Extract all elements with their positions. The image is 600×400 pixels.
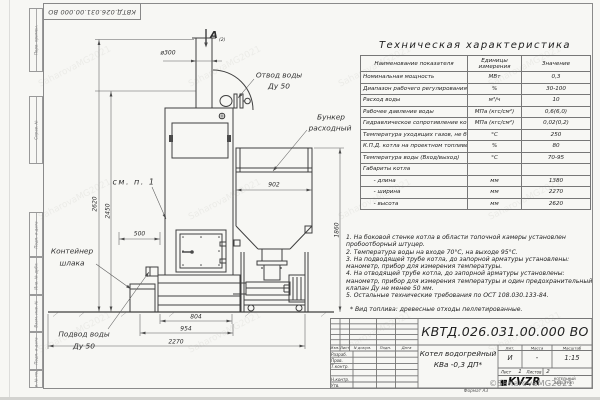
role-prov: Пров. bbox=[331, 358, 353, 363]
frame-field-inv-podl: Инв. № подл. bbox=[29, 370, 43, 388]
spec-cell-unit bbox=[468, 164, 522, 176]
spec-cell-value: 30-100 bbox=[522, 83, 591, 95]
spec-row: - высота мм 2620 bbox=[361, 198, 591, 210]
spec-header-name: Наименование показателя bbox=[361, 56, 468, 72]
view-a-marker: А bbox=[210, 30, 218, 41]
spec-table-region: Техническая характеристика Наименование … bbox=[360, 40, 590, 210]
scale-value: 1:15 bbox=[564, 354, 579, 362]
dim-base-width: 804 bbox=[190, 314, 201, 321]
dim-total-height: 2620 bbox=[92, 196, 99, 211]
frame-field-perv-primen: Перв. примен. bbox=[29, 8, 43, 72]
drawing-sheet: КВТД.026.031.00.000 ВО Перв. примен. Спр… bbox=[0, 0, 600, 400]
spec-cell-value: 2620 bbox=[522, 198, 591, 210]
mass-header: Масса bbox=[531, 346, 543, 351]
spec-cell-unit: % bbox=[468, 83, 522, 95]
lit-header: Лит. bbox=[506, 346, 515, 351]
sheet-value: 1 bbox=[518, 369, 522, 375]
scale-header: Масштаб bbox=[563, 346, 582, 351]
spec-row: Температура уходящих газов, не более °С … bbox=[361, 129, 591, 141]
role-nkontr: Н.контр. bbox=[331, 377, 353, 382]
water-outlet-size: Ду 50 bbox=[268, 82, 290, 91]
hopper-label-2: расходный bbox=[309, 124, 352, 133]
spec-cell-unit: °С bbox=[468, 129, 522, 141]
dim-overall-width: 2270 bbox=[168, 339, 183, 346]
hopper-label: Бункер bbox=[317, 113, 345, 122]
note-line: 2. Температура воды на входе 70°С, на вы… bbox=[346, 249, 592, 256]
role-tkontr: Т.контр. bbox=[331, 364, 353, 369]
mass-value: - bbox=[536, 354, 538, 362]
title-block-designation: КВТД.026.031.00.000 ВО bbox=[418, 319, 592, 344]
frame-field-label: Подп. и дата bbox=[34, 337, 39, 364]
spec-cell-unit: м³/ч bbox=[468, 95, 522, 107]
dim-hopper-width: 902 bbox=[268, 182, 279, 189]
view-a-sheet-ref: (2) bbox=[219, 38, 225, 43]
fuel-type-note: * Вид топлива: древесные отходы пеллетир… bbox=[350, 306, 592, 313]
spec-row: Габариты котла bbox=[361, 164, 591, 176]
frame-field-label: Перв. примен. bbox=[34, 25, 39, 55]
role-razrab: Разраб. bbox=[331, 352, 353, 357]
spec-cell-value: 0,02(0,2) bbox=[522, 118, 591, 130]
spec-cell-name: Габариты котла bbox=[361, 164, 468, 176]
spec-cell-name: К.П.Д. котла на проектном топливе bbox=[361, 141, 468, 153]
water-inlet-size: Ду 50 bbox=[73, 342, 95, 351]
spec-row: - ширина мм 2270 bbox=[361, 187, 591, 199]
spec-cell-name: Температура уходящих газов, не более bbox=[361, 129, 468, 141]
spec-cell-value bbox=[522, 164, 591, 176]
title-block-header-col: N докум. bbox=[349, 345, 376, 351]
note-line: пробоотборный штуцер. bbox=[346, 241, 592, 248]
slag-container-label-2: шлака bbox=[59, 259, 84, 268]
spec-cell-unit: мм bbox=[468, 198, 522, 210]
spec-row: Гидравлическое сопротивление котла МПа (… bbox=[361, 118, 591, 130]
frame-field-inv-dubl: Инв. № дубл. bbox=[29, 257, 43, 295]
spec-row: Диапазон рабочего регулирования % 30-100 bbox=[361, 83, 591, 95]
corner-designation-text: КВТД.026.031.00.000 ВО bbox=[48, 8, 136, 16]
frame-field-label: Справ. № bbox=[34, 120, 39, 139]
spec-cell-value: 2270 bbox=[522, 187, 591, 199]
spec-cell-value: 70-95 bbox=[522, 152, 591, 164]
see-note-label: см. п. 1 bbox=[113, 178, 156, 187]
dim-outlet-height: 2450 bbox=[104, 203, 111, 218]
spec-cell-value: 80 bbox=[522, 141, 591, 153]
corner-designation-stamp: КВТД.026.031.00.000 ВО bbox=[43, 3, 141, 20]
spec-row: К.П.Д. котла на проектном топливе % 80 bbox=[361, 141, 591, 153]
spec-cell-unit: °С bbox=[468, 152, 522, 164]
spec-table: Наименование показателя Единицы измерени… bbox=[360, 55, 591, 210]
spec-cell-value: 0,6(6,0) bbox=[522, 106, 591, 118]
spec-cell-name: Рабочее давление воды bbox=[361, 106, 468, 118]
sheet-label: Лист bbox=[501, 369, 511, 374]
note-line: 4. На отводящей трубе котла, до запорной… bbox=[346, 270, 592, 277]
water-outlet-label: Отвод воды bbox=[256, 71, 302, 80]
spec-cell-name: Диапазон рабочего регулирования bbox=[361, 83, 468, 95]
spec-cell-name: Гидравлическое сопротивление котла bbox=[361, 118, 468, 130]
spec-row: Рабочее давление воды МПа (кгс/см²) 0,6(… bbox=[361, 106, 591, 118]
spec-header-value: Значение bbox=[522, 56, 591, 72]
title-block-header-col: Дата bbox=[395, 345, 418, 351]
spec-row: Номинальная мощность МВт 0,3 bbox=[361, 72, 591, 84]
spec-cell-unit: МПа (кгс/см²) bbox=[468, 106, 522, 118]
spec-header-units: Единицы измерения bbox=[468, 56, 522, 72]
spec-row: Температура воды (Вход/выход) °С 70-95 bbox=[361, 152, 591, 164]
spec-cell-unit: % bbox=[468, 141, 522, 153]
frame-field-podp-data-2: Подп. и дата bbox=[29, 332, 43, 370]
spec-cell-value: 0,3 bbox=[522, 72, 591, 84]
spec-cell-unit: мм bbox=[468, 187, 522, 199]
spec-cell-name: - длина bbox=[361, 175, 468, 187]
note-line: 5. Остальные технические требования по О… bbox=[346, 292, 592, 299]
frame-field-sprav-no: Справ. № bbox=[29, 96, 43, 164]
title-block-header-col: Лист bbox=[340, 345, 349, 351]
spec-cell-name: - высота bbox=[361, 198, 468, 210]
dim-hopper-height: 1860 bbox=[334, 222, 341, 237]
water-inlet-label: Подвод воды bbox=[58, 330, 109, 339]
title-block-header-col: Подп. bbox=[376, 345, 395, 351]
technical-notes: 1. На боковой стенке котла в области топ… bbox=[346, 234, 592, 313]
role-utv: Утв. bbox=[331, 383, 353, 388]
product-title-line2: КВа -0,3 ДП* bbox=[418, 360, 498, 369]
spec-cell-name: - ширина bbox=[361, 187, 468, 199]
sheets-value: 2 bbox=[546, 369, 550, 375]
frame-field-label: Подп. и дата bbox=[34, 221, 39, 248]
frame-field-podp-data-1: Подп. и дата bbox=[29, 212, 43, 257]
title-block-header-col: Изм. bbox=[330, 345, 340, 351]
spec-cell-name: Расход воды bbox=[361, 95, 468, 107]
dim-chimney-diameter: ø300 bbox=[160, 50, 175, 57]
spec-cell-value: 1380 bbox=[522, 175, 591, 187]
frame-field-label: Инв. № дубл. bbox=[34, 262, 39, 289]
spec-row: Расход воды м³/ч 10 bbox=[361, 95, 591, 107]
spec-cell-name: Температура воды (Вход/выход) bbox=[361, 152, 468, 164]
spec-cell-unit: МВт bbox=[468, 72, 522, 84]
frame-field-label: Взам. инв. № bbox=[34, 300, 39, 327]
frame-field-label: Инв. № подл. bbox=[34, 370, 39, 388]
spec-cell-value: 250 bbox=[522, 129, 591, 141]
format-note: Формат А3 bbox=[452, 389, 500, 394]
product-title-line1: Котел водогрейный bbox=[418, 349, 498, 358]
title-block-header-columns: Изм.ЛистN докум.Подп.Дата bbox=[330, 345, 418, 351]
dim-boiler-width: 954 bbox=[180, 326, 191, 333]
spec-table-title: Техническая характеристика bbox=[360, 40, 590, 51]
spec-cell-unit: мм bbox=[468, 175, 522, 187]
spec-cell-value: 10 bbox=[522, 95, 591, 107]
arrowheads bbox=[49, 40, 342, 347]
spec-cell-unit: МПа (кгс/см²) bbox=[468, 118, 522, 130]
spec-cell-name: Номинальная мощность bbox=[361, 72, 468, 84]
note-line: манометр, прибор для измерения температу… bbox=[346, 278, 592, 285]
watermark-signature: ©SaharovaMG2021 bbox=[489, 378, 573, 388]
lit-value: И bbox=[507, 354, 512, 362]
spec-row: - длина мм 1380 bbox=[361, 175, 591, 187]
slag-container-label: Контейнер bbox=[51, 247, 93, 256]
spec-header-row: Наименование показателя Единицы измерени… bbox=[361, 56, 591, 72]
sheets-label: Листов bbox=[527, 369, 542, 374]
dim-offset: 500 bbox=[134, 231, 145, 238]
frame-field-vzam-inv: Взам. инв. № bbox=[29, 295, 43, 332]
